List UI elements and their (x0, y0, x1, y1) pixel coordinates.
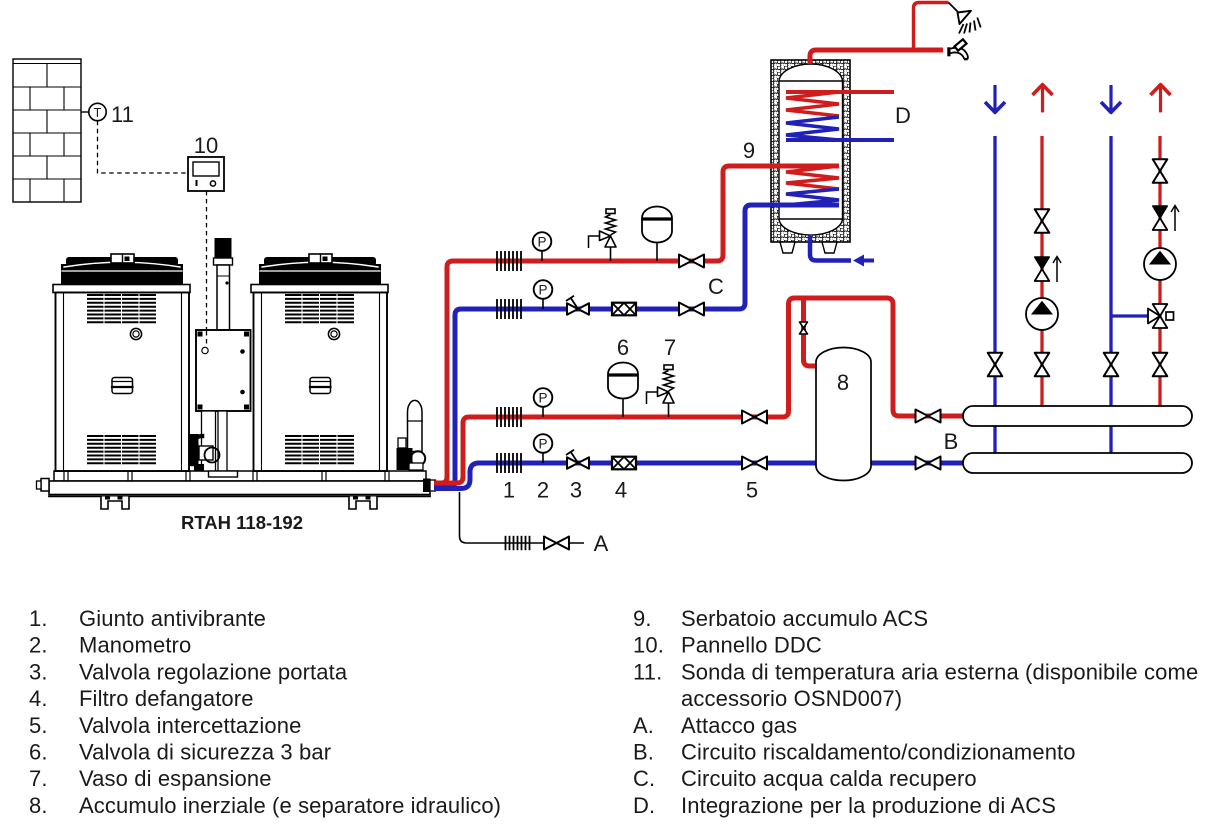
svg-text:5.: 5. (29, 713, 48, 738)
svg-text:Manometro: Manometro (79, 633, 191, 658)
svg-text:2.: 2. (29, 633, 48, 658)
svg-text:11.: 11. (633, 659, 662, 684)
svg-text:A.: A. (633, 713, 654, 738)
svg-text:B: B (944, 429, 959, 454)
svg-text:1.: 1. (29, 606, 48, 631)
svg-text:3: 3 (570, 478, 582, 503)
svg-text:4: 4 (615, 478, 627, 503)
svg-text:10: 10 (194, 133, 218, 158)
svg-text:Serbatoio accumulo ACS: Serbatoio accumulo ACS (681, 606, 928, 631)
svg-text:Attacco gas: Attacco gas (681, 713, 797, 738)
svg-text:Circuito acqua calda recupero: Circuito acqua calda recupero (681, 766, 977, 791)
svg-text:C.: C. (633, 766, 655, 791)
svg-text:2: 2 (537, 478, 549, 503)
svg-text:9.: 9. (633, 606, 652, 631)
svg-text:accessorio OSND007): accessorio OSND007) (681, 686, 902, 711)
svg-text:T: T (94, 106, 102, 120)
svg-text:C: C (708, 274, 724, 299)
svg-text:7.: 7. (29, 766, 48, 791)
svg-text:1: 1 (503, 478, 515, 503)
svg-text:Valvola di sicurezza 3 bar: Valvola di sicurezza 3 bar (79, 740, 331, 765)
svg-text:Pannello DDC: Pannello DDC (681, 633, 822, 658)
svg-text:B.: B. (633, 740, 654, 765)
svg-text:RTAH 118-192: RTAH 118-192 (181, 512, 303, 533)
svg-text:Sonda di temperatura aria este: Sonda di temperatura aria esterna (dispo… (681, 659, 1198, 684)
svg-text:Valvola intercettazione: Valvola intercettazione (79, 713, 301, 738)
svg-text:3.: 3. (29, 659, 48, 684)
svg-text:Filtro defangatore: Filtro defangatore (79, 686, 254, 711)
svg-text:A: A (594, 531, 609, 556)
svg-text:11: 11 (111, 102, 134, 127)
svg-text:Integrazione per la produzione: Integrazione per la produzione di ACS (681, 793, 1056, 818)
svg-text:Giunto antivibrante: Giunto antivibrante (79, 606, 266, 631)
svg-text:10.: 10. (633, 633, 664, 658)
svg-text:D: D (895, 103, 911, 128)
svg-text:7: 7 (664, 335, 676, 360)
svg-text:Vaso di espansione: Vaso di espansione (79, 766, 272, 791)
svg-text:Circuito riscaldamento/condizi: Circuito riscaldamento/condizionamento (681, 740, 1076, 765)
svg-text:8: 8 (837, 370, 849, 395)
svg-text:D.: D. (633, 793, 655, 818)
svg-text:4.: 4. (29, 686, 48, 711)
svg-text:6: 6 (617, 335, 629, 360)
svg-text:6.: 6. (29, 740, 48, 765)
svg-text:Accumulo inerziale (e separato: Accumulo inerziale (e separatore idrauli… (79, 793, 501, 818)
svg-text:9: 9 (743, 138, 755, 163)
svg-text:5: 5 (746, 478, 758, 503)
svg-text:8.: 8. (29, 793, 48, 818)
svg-text:Valvola regolazione portata: Valvola regolazione portata (79, 659, 348, 684)
